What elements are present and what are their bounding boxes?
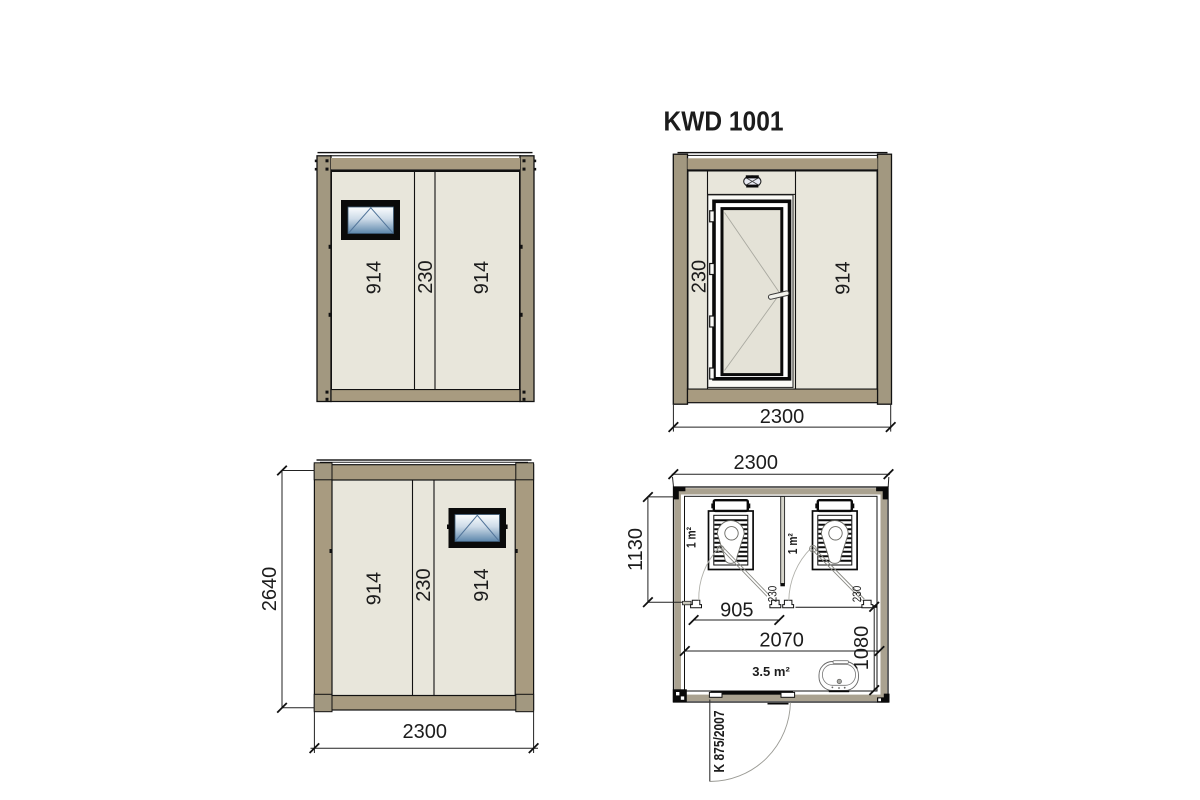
svg-text:905: 905 bbox=[720, 600, 753, 622]
svg-text:2300: 2300 bbox=[403, 721, 448, 743]
svg-text:1080: 1080 bbox=[851, 626, 873, 671]
svg-text:914: 914 bbox=[364, 261, 386, 294]
svg-text:230: 230 bbox=[413, 568, 435, 601]
svg-text:K 875/2007: K 875/2007 bbox=[712, 711, 728, 773]
svg-text:914: 914 bbox=[364, 572, 386, 605]
svg-text:2640: 2640 bbox=[259, 567, 281, 612]
svg-text:230: 230 bbox=[415, 260, 437, 293]
svg-text:914: 914 bbox=[471, 261, 493, 294]
svg-text:1130: 1130 bbox=[625, 528, 647, 571]
svg-text:2070: 2070 bbox=[759, 629, 804, 651]
svg-text:3.5 m²: 3.5 m² bbox=[752, 664, 790, 679]
svg-text:KWD 1001: KWD 1001 bbox=[664, 106, 784, 137]
svg-text:1 m²: 1 m² bbox=[683, 526, 698, 548]
svg-text:2300: 2300 bbox=[734, 452, 779, 474]
svg-text:2300: 2300 bbox=[760, 406, 805, 428]
svg-text:1 m²: 1 m² bbox=[785, 533, 800, 555]
svg-text:230: 230 bbox=[850, 585, 864, 602]
svg-text:914: 914 bbox=[832, 261, 854, 294]
svg-text:230: 230 bbox=[766, 585, 780, 602]
svg-text:230: 230 bbox=[689, 260, 711, 293]
svg-text:914: 914 bbox=[471, 568, 493, 601]
